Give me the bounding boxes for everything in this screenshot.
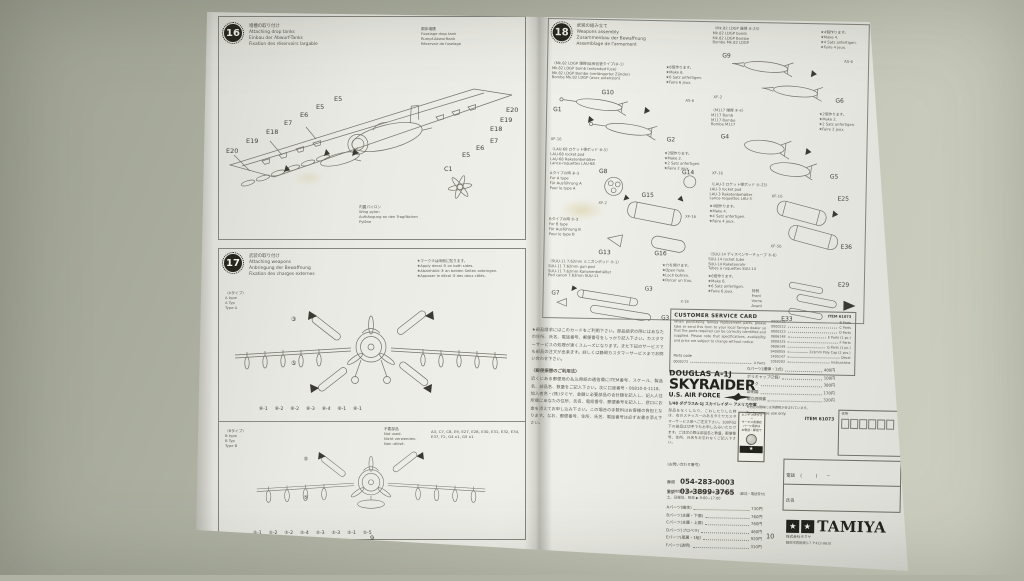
part-label: E20 [506, 106, 518, 114]
part-label: E29 [838, 282, 850, 289]
price-value: 760円 [751, 521, 762, 527]
price-row: Dパーツ(プロペラ)460円 [666, 527, 762, 535]
note-line: ★Apposer le décal ③ des deux côtés. [417, 274, 523, 279]
step18-number-badge: 18 [552, 23, 570, 41]
bag-number: ⑤-1 [347, 531, 356, 536]
parts-code-value: 0000223 [771, 329, 786, 333]
paint-callout: XF-16 [772, 193, 784, 198]
price-row: マーク380円 [747, 381, 835, 389]
type-b-diagram: ⑤ ⑤ [231, 447, 511, 531]
parts-code-label: Parts code [673, 354, 691, 358]
heading-line: Pod canon 7.62mm SUU-11 [548, 274, 658, 281]
price-value: 320円 [823, 398, 834, 404]
note-line: Réservoir de fuselage [421, 42, 501, 47]
price-list-left: Aパーツ(機体)730円Bパーツ(主翼・下面)760円Cパーツ(主翼・上面)76… [666, 504, 763, 551]
parts-code-value: 0606149 [771, 344, 786, 348]
paint-callout: XF-2 [713, 94, 722, 99]
paint-callout: XF-16 [551, 136, 563, 141]
price-value: 730円 [751, 506, 762, 512]
parts-code-row: 1050203Instructions [770, 359, 850, 365]
note-line: ★Faire 4 jeux. [820, 45, 868, 51]
part-label: G8 [599, 168, 608, 175]
parts-code-value: 0000221 [771, 319, 786, 323]
price-label: ポリキャップ(2個) [747, 374, 780, 381]
mk82ext-diagram: G10 G1 G2 XF-16 AS-6 [549, 85, 706, 146]
type-b-label: 〈Bタイプ〉B typeB TypType B [225, 429, 285, 449]
note-line: Pour le type B [549, 232, 595, 238]
price-row: ポリキャップ(2個)100円 [747, 374, 835, 382]
part-label: G1 [553, 106, 562, 113]
note-line: ★Faire 6 jeux. [708, 289, 750, 295]
price-row: Aパーツ(機体)730円 [666, 504, 762, 512]
part-label: G13 [598, 249, 611, 256]
parts-code-name: 2x3mm Poly Cap (2 pcs.) [809, 350, 850, 355]
mk82-heading: 〈Mk.82 LDGP 爆弾 ⑧-23〉Mk.82 LDGP bombMk.82… [712, 26, 816, 47]
bag-number: ⑤-2 [284, 531, 293, 536]
price-value: 400円 [824, 367, 835, 373]
lau68-diagram: G8 G15 G13 G16 G14 XF-2 XF-16 [596, 168, 702, 258]
part-label: E19 [246, 137, 258, 145]
suu14-front-note: 前側FrontVorneAvant [751, 289, 777, 309]
price-row: Eパーツ(尾翼・1組)920円 [666, 535, 762, 543]
step17-panel: 17 武装の取り付けAttaching weaponsAnbringung de… [218, 248, 526, 540]
paint-callout: X-18 [680, 300, 689, 304]
parts-code-value: 0000273 [673, 360, 688, 364]
tamiya-company-info: 株式会社タミヤ 静岡市恩田原3-7 〒422-8610 [786, 535, 832, 546]
suu11-notes: ★穴を開けます。★Open hole.★Loch bohren.★Percer … [662, 263, 704, 283]
page-9: 16 増槽の取り付けAttaching drop tanksEinbau der… [216, 10, 528, 570]
price-row: Cパーツ(主翼・上面)760円 [666, 520, 762, 528]
bag-number: ⑧-1 [353, 407, 362, 412]
suu14-notes: ★6個作ります。★Make 6.★6 Satz anfertigen.★Fair… [708, 274, 750, 294]
product-body-text: 部品をなくしたり、こわしたりした時は、右のステッカーのあるタミヤカスタマーサービ… [668, 408, 737, 447]
parts-code-value: 0000222 [771, 324, 786, 328]
part-label: E5 [462, 151, 470, 159]
name-form-label: 氏名 [786, 499, 795, 504]
lau68-type-b: Bタイプの時 ⑤-3For B typeFür Ausführung BPour… [549, 217, 595, 237]
note-line: ★Faire 4 jeux. [709, 219, 765, 225]
part-label: E7 [284, 119, 292, 127]
decal-note: ★マーク③は両側に貼ります。★Apply decal ③ on both sid… [417, 259, 523, 279]
part-label: C1 [444, 165, 453, 173]
parts-code-list: 0000221B Parts0000222C Parts0000223D Par… [770, 319, 851, 366]
heading-line: Tubes à roquettes SUU-14 [708, 267, 812, 274]
parts-code-value: 1050203 [770, 359, 785, 363]
price-value: 380円 [824, 383, 835, 389]
part-label: G4 [721, 133, 730, 140]
parts-order-info: ★部品請求にはこのカードをご利用下さい。部品請求の際にはあなたの住所、氏名、電話… [530, 326, 664, 429]
note-line: Pylône [359, 220, 444, 225]
parts-code-name: F Parts [840, 341, 851, 345]
parts-code-name: D Parts [839, 331, 851, 335]
hours-line2: 土、日曜日、祝日 ▶ 9:00~17:00 [667, 495, 721, 501]
suu14-heading: 〈SUU-14 ディスペンサーチューブ ⑤-6〉SUU-14 rocket tu… [708, 252, 812, 273]
m117-notes: ★2個作ります。★Make 2.★2 Satz anfertigen.★Fair… [819, 112, 867, 132]
part-label: G9 [722, 52, 731, 59]
price-label: Fパーツ(透明) [666, 542, 691, 548]
part-label: E25 [837, 196, 849, 203]
price-row: Fパーツ(透明)310円 [666, 542, 762, 550]
step17-title: 武装の取り付けAttaching weaponsAnbringung der B… [249, 254, 389, 278]
bag-number: ⑧-1 [259, 407, 268, 412]
price-label: 組立説明書 [747, 396, 767, 402]
bag-number: ⑤-4 [300, 531, 309, 536]
parts-order-paragraph-2: 近くにある郵便局の払込用紙の通信欄にITEM番号、スケール、製品名、部品名、数量… [530, 375, 663, 429]
mk82ext-heading: 〈Mk.82 LDGP 爆弾(延長信管タイプ)⑧-1〉Mk.82 LDGP bo… [552, 61, 662, 82]
price-list-right: Gパーツ(爆弾・1式)400円ポリキャップ(2個)100円マーク380円説明図1… [746, 366, 835, 423]
lau68-type-a: Aタイプの時 ⑧-3For A typeFür Ausführung APour… [550, 171, 596, 191]
price-row: Gパーツ(爆弾・1式)400円 [747, 366, 835, 374]
mk82ext-notes: ★6個作ります。★Make 6.★6 Satz anfertigen.★Fair… [666, 65, 708, 85]
name-form-row: 氏名 [784, 485, 900, 510]
parts-code-name: C Parts [839, 326, 851, 330]
part-label: G3 [645, 287, 654, 293]
step16-diagram: E20 E19 E18 E7 E6 E5 E5 C1 E5 E6 E7 E18 … [222, 53, 522, 205]
bag-number: ⑧-3 [306, 407, 315, 412]
wing-pylon-note: 内翼パイロンWing pylonAufhängung an den Tragfl… [359, 205, 444, 225]
paint-callout: XF-16 [712, 170, 724, 175]
price-label: Bパーツ(主翼・下面) [666, 512, 703, 519]
bag-mark: ⑤ [291, 360, 296, 367]
part-label: G16 [654, 250, 667, 257]
customer-card-body: When purchasing Tamiya replacement parts… [674, 320, 766, 345]
part-label: E5 [334, 95, 342, 103]
note-line: Avant [751, 304, 777, 309]
parts-code-row: 0000273A Parts [673, 360, 765, 366]
lau3-diagram: E25 E36 XF-16 XF-56 [771, 191, 860, 251]
bag-number: ⑤-1 [253, 531, 262, 536]
bag-number-row-a: ⑧-1⑧-2⑧-2⑧-3⑧-4⑧-1⑧-1 [259, 407, 362, 412]
heading-line: Bombe Mk.82 LDGP (avec extension) [552, 76, 662, 83]
price-label: Eパーツ(尾翼・1組) [666, 535, 701, 542]
step16-number-badge: 16 [224, 24, 242, 42]
phone-form-value: ( ) － [800, 474, 831, 480]
parts-code-name: G Parts (1 pc.) [827, 345, 851, 349]
contact-form-box: 電話 ( ) － 氏名 [783, 459, 902, 513]
bag-mark: ⑤ [304, 456, 309, 462]
m117-heading: 〈M117 爆弾 ⑨-4〉M117 BombM117 BombeBombe M1… [711, 108, 815, 129]
section-divider [219, 421, 525, 422]
price-row: 説明図170円 [747, 389, 835, 397]
mascot-face-icon [746, 434, 757, 445]
part-label: G5 [830, 173, 839, 180]
parts-code-name: Decal [841, 356, 850, 360]
part-label: G6 [835, 98, 844, 105]
phone-form-label: 電話 [786, 474, 795, 479]
note-line: Non utilisé. [384, 442, 429, 447]
company-address: 静岡市恩田原3-7 〒422-8610 [786, 540, 831, 546]
paint-callout: XF-2 [598, 200, 607, 205]
part-label: E20 [226, 147, 238, 155]
step16-panel: 16 増槽の取り付けAttaching drop tanksEinbau der… [218, 16, 526, 240]
price-value: 920円 [751, 536, 762, 542]
bag-number: ⑧-4 [322, 407, 331, 412]
not-used-parts-list: A3, C7, C8, E9, E27, E28, E30, E31, E32,… [431, 429, 523, 440]
price-value: 100円 [824, 375, 835, 381]
price-value: 170円 [823, 390, 834, 396]
fuselage-drop-tank-note: 胴体増槽Fuselage drop tankRumpf-AbwurftankRé… [421, 27, 501, 47]
parts-code-name: E Parts (1 pc.) [828, 335, 851, 339]
instruction-sheet: 16 増槽の取り付けAttaching drop tanksEinbau der… [194, 4, 918, 575]
part-label: E5 [316, 103, 324, 111]
type-a-diagram: ③ ⑤ [231, 305, 511, 405]
page-number-10: 10 [766, 532, 774, 540]
part-label: E18 [490, 125, 502, 133]
tax-note: ★上記の価格には消費税が含まれています。 [746, 404, 834, 411]
m117-diagram: G4 G5 XF-16 [710, 130, 867, 181]
part-label: G2 [667, 136, 676, 143]
price-label: Gパーツ(爆弾・1式) [747, 366, 783, 373]
star-icon: ★ [801, 519, 814, 532]
price-rows: Gパーツ(爆弾・1式)400円ポリキャップ(2個)100円マーク380円説明図1… [747, 366, 836, 404]
page-edge-shadow [196, 10, 214, 581]
page-10: 18 武装の組み立てWeapons assemblyZusammenbau de… [535, 14, 912, 581]
price-label: Dパーツ(プロペラ) [666, 527, 699, 534]
star-icon: ★ [786, 519, 799, 532]
part-label: E19 [500, 116, 512, 124]
bag-number: ⑤-2 [269, 531, 278, 536]
part-label: E36 [841, 244, 853, 251]
heading-line: Bombe Mk.82 LDGP [712, 41, 816, 48]
parts-code-value: 9400055 [771, 349, 786, 353]
parts-code-name: Instructions [831, 361, 850, 365]
page-number-9: 9 [370, 534, 374, 542]
note-line: Pour le type A [550, 186, 596, 192]
part-label: G14 [682, 169, 695, 176]
price-value: 460円 [751, 529, 762, 535]
heading-line: Bombe M117 [711, 123, 815, 130]
bag-number: ⑧-2 [275, 407, 284, 412]
phone-form-row: 電話 ( ) － [784, 460, 900, 487]
parts-code-name: B Parts [840, 321, 852, 325]
paint-callout: AS-6 [685, 98, 694, 103]
postal-code-cells [841, 419, 899, 430]
inquiry-label: (お問い合わせ番号) [667, 462, 699, 468]
part-label: G7 [551, 290, 560, 296]
sticker-line: お電話・郵送で [740, 428, 763, 432]
address-form-box: 住所 [838, 410, 903, 457]
part-label: E6 [476, 144, 484, 152]
price-row: Bパーツ(主翼・下面)760円 [666, 512, 762, 520]
note-line: ★Faire 6 jeux. [666, 80, 708, 86]
lau3-notes: ★4個作ります。★Make 4.★4 Satz anfertigen.★Fair… [709, 204, 765, 225]
tamiya-wordmark: TAMIYA [817, 517, 886, 536]
address-label: 住所 [841, 412, 899, 418]
parts-code-name: A Parts [754, 361, 766, 365]
lau68-heading: 〈LAU-68 ロケット弾ポッド ⑧-5〉LAU-68 rocket podLA… [550, 147, 660, 168]
bag-number: ⑤-3 [332, 531, 341, 536]
not-used-note: 不要部品Not used.Nicht verwenden.Non utilisé… [384, 427, 429, 447]
bag-number: ⑤-3 [316, 531, 325, 536]
part-label: E6 [300, 111, 308, 119]
price-value: 760円 [751, 514, 762, 520]
part-label: E7 [490, 137, 498, 145]
paint-callout: XF-56 [771, 243, 783, 248]
price-value: 310円 [750, 544, 761, 550]
paint-callout: AS-6 [844, 59, 853, 64]
tamiya-logo: ★ ★ TAMIYA [786, 517, 886, 537]
parts-order-paragraph-1: ★部品請求にはこのカードをご利用下さい。部品請求の際にはあなたの住所、氏名、電話… [531, 326, 664, 365]
step16-title: 増槽の取り付けAttaching drop tanksEinbau der Ab… [249, 24, 389, 48]
price-label: Cパーツ(主翼・上面) [666, 520, 703, 527]
price-label: マーク [747, 381, 759, 387]
parts-code-value: 0000225 [771, 339, 786, 343]
bag-number-row-b: ⑤-1⑤-2⑤-2⑤-4⑤-3⑤-3⑤-1⑤-5 [253, 531, 372, 536]
paint-callout: XF-16 [685, 214, 697, 219]
step17-number-badge: 17 [224, 254, 242, 272]
parts-code-value: 0606148 [771, 334, 786, 338]
suu11-heading: 〈SUU-11 7.62mm ミニガンポッド ⑤-1〉SUU-11 7.62mm… [548, 259, 658, 280]
bag-mark: ⑤ [304, 495, 309, 501]
part-label: E18 [266, 128, 278, 136]
price-label: Aパーツ(機体) [666, 504, 691, 510]
title-line: Fixation des charges externes [249, 272, 389, 278]
price-row: 組立説明書320円 [747, 396, 835, 404]
mk82-diagram: G9 G6 AS-6 XF-2 [711, 50, 868, 107]
parts-code-value: 1405147 [770, 354, 785, 358]
step18-panel: 18 武装の組み立てWeapons assemblyZusammenbau de… [542, 18, 870, 324]
step18-title: 武装の組み立てWeapons assemblyZusammenbau der B… [576, 24, 706, 50]
part-label: G15 [641, 192, 654, 199]
bag-number: ⑧-1 [338, 407, 347, 412]
star-icon: ★ [740, 446, 763, 453]
price-label: 説明図 [747, 389, 759, 395]
part-label: G10 [601, 89, 614, 96]
phone-note: (郵送・電話受付) [740, 492, 766, 496]
desk-surface: 16 増槽の取り付けAttaching drop tanksEinbau der… [0, 0, 1024, 575]
bag-number: ⑧-2 [290, 407, 299, 412]
mk82-notes: ★4個作ります。★Make 4.★4 Satz anfertigen.★Fair… [820, 30, 868, 50]
title-line: Fixation des réservoirs largable [249, 42, 389, 48]
part-label: G3 [661, 315, 670, 321]
bag-mark: ③ [291, 316, 296, 323]
